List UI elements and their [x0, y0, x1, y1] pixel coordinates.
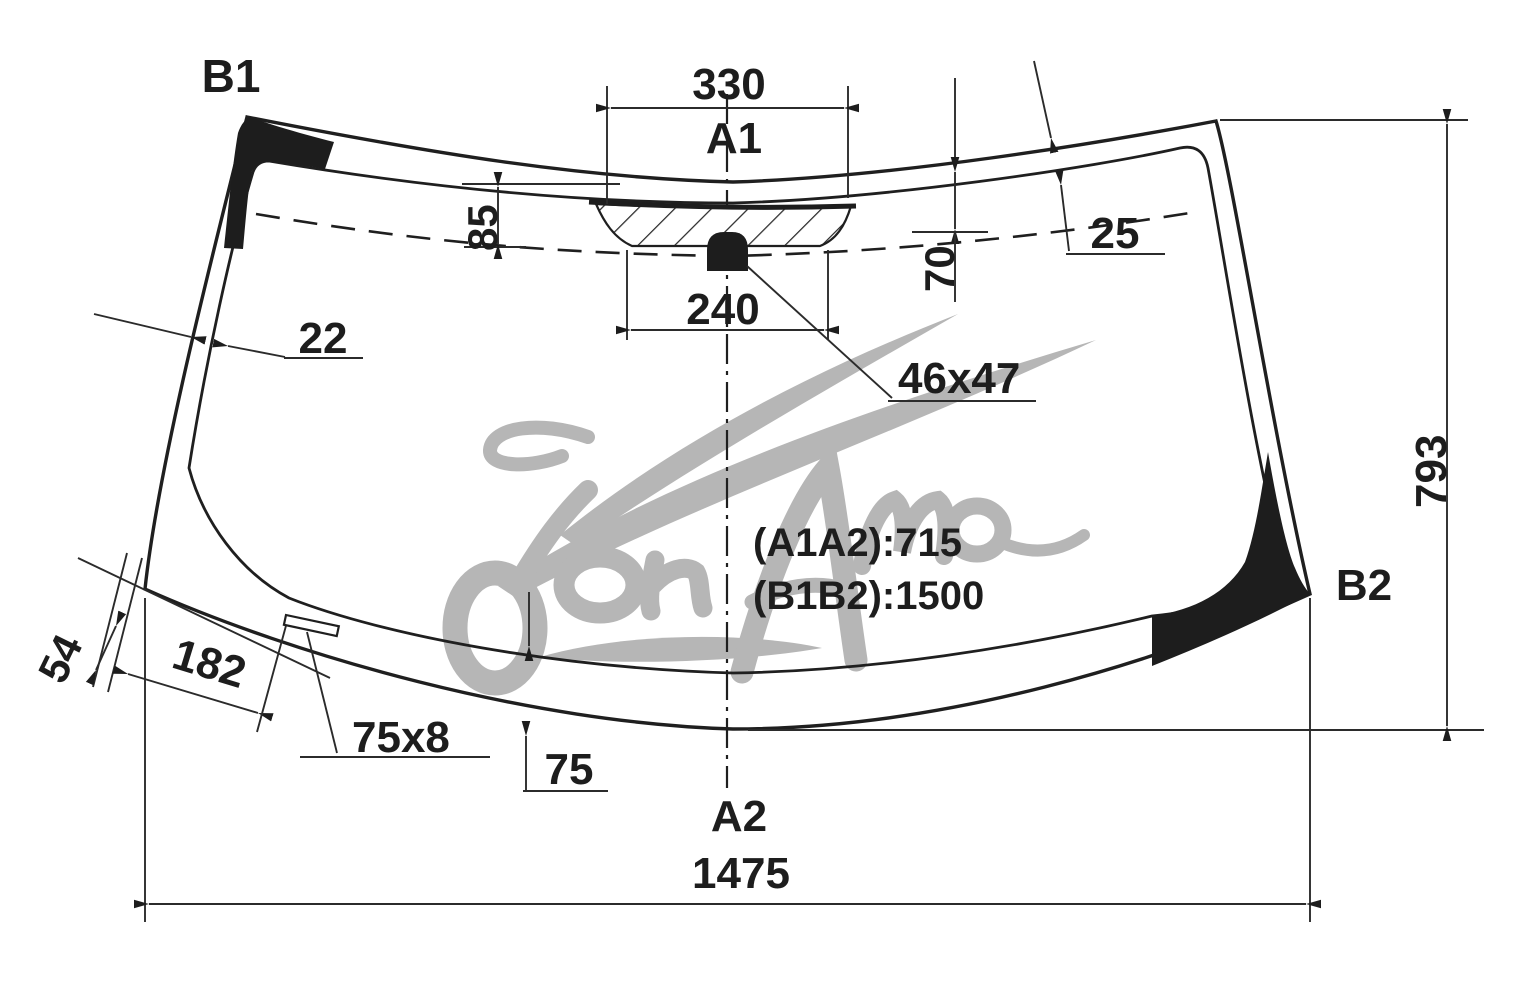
label-a2: A2 — [711, 792, 767, 841]
leader-22-inner — [228, 346, 285, 357]
watermark-curl — [490, 428, 588, 465]
leader-22-outer — [94, 314, 191, 337]
label-a1: A1 — [706, 114, 762, 163]
dim-22-text: 22 — [299, 314, 348, 363]
watermark-tail — [1000, 535, 1084, 550]
leader-75x8 — [307, 632, 337, 753]
dim-85-text: 85 — [459, 204, 506, 251]
leader-25-outer — [1034, 61, 1051, 138]
dim-330-text: 330 — [692, 60, 765, 109]
dim-240-text: 240 — [686, 285, 759, 334]
label-b2: B2 — [1336, 561, 1392, 610]
label-b1: B1 — [202, 50, 261, 102]
mirror-mount — [707, 232, 748, 271]
dim-54-text: 54 — [29, 627, 92, 690]
dim-70-text: 70 — [916, 245, 963, 292]
dim-25-text: 25 — [1091, 209, 1140, 258]
heater-strip-75x8 — [284, 615, 339, 636]
windshield-diagram: B1 330 A1 85 25 70 240 46x47 22 793 B2 (… — [0, 0, 1532, 1000]
dim-75-text: 75 — [545, 745, 594, 794]
ext-edge-extension-a — [108, 558, 142, 692]
molding-b1-corner — [224, 117, 334, 249]
drawing-canvas: B1 330 A1 85 25 70 240 46x47 22 793 B2 (… — [0, 0, 1532, 1000]
dim-46x47-text: 46x47 — [898, 354, 1020, 403]
dim-75x8-text: 75x8 — [352, 713, 450, 762]
dim-1475-text: 1475 — [692, 849, 790, 898]
dim-793-text: 793 — [1407, 435, 1456, 508]
leader-25-inner — [1061, 185, 1069, 251]
dim-182-text: 182 — [167, 630, 252, 698]
